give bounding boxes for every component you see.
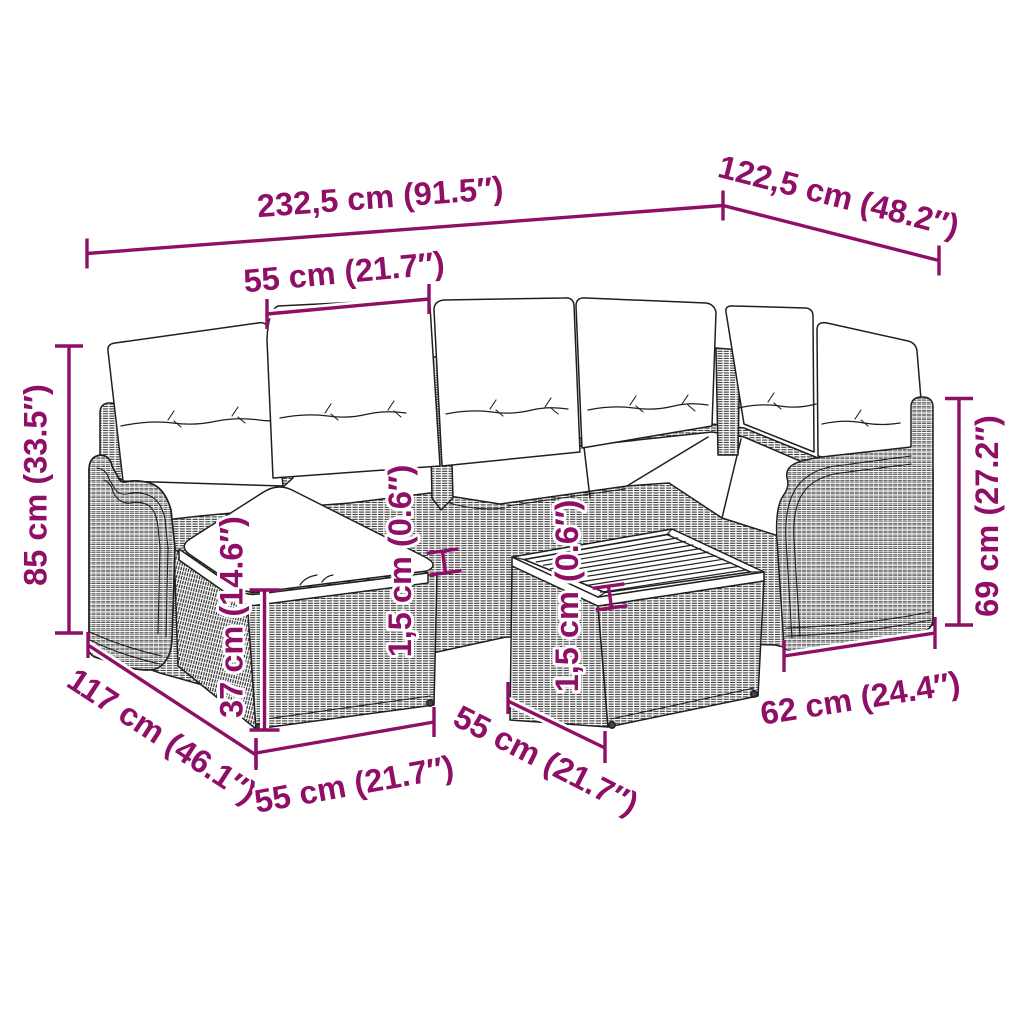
svg-text:1,5 cm (0.6″): 1,5 cm (0.6″)	[549, 500, 585, 693]
svg-text:85 cm (33.5″): 85 cm (33.5″)	[18, 384, 54, 586]
svg-text:37 cm (14.6″): 37 cm (14.6″)	[214, 516, 250, 718]
svg-text:69 cm (27.2″): 69 cm (27.2″)	[969, 415, 1005, 617]
svg-text:1,5 cm (0.6″): 1,5 cm (0.6″)	[382, 465, 418, 658]
